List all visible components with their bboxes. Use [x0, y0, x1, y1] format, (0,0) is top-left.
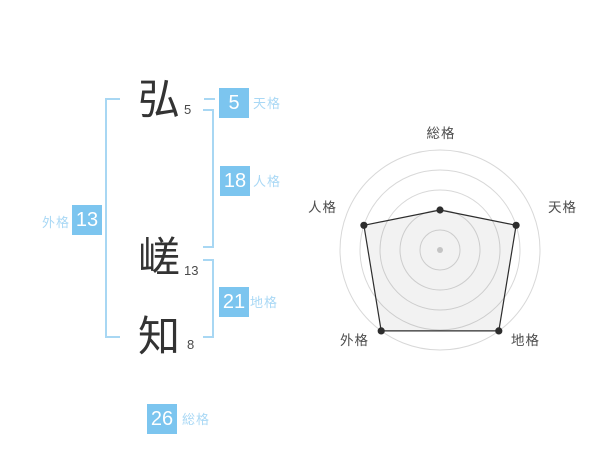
radar-axis-label: 地格 — [511, 333, 540, 348]
name-fortune-result-panel: 弘 嵯 知 5 13 8 5 天格 18 人格 外格 13 21 地格 26 総… — [0, 0, 600, 470]
soukaku-label: 総格 — [182, 413, 210, 426]
radar-data-polygon — [364, 210, 516, 331]
radar-axis-label: 総格 — [427, 126, 456, 141]
kanji-char-1: 弘 — [135, 78, 183, 122]
jinkaku-label: 人格 — [253, 175, 281, 188]
chikaku-badge: 21 — [219, 287, 249, 317]
chikaku-bracket-bottom-tick — [203, 336, 214, 338]
radar-center-dot — [437, 247, 443, 253]
radar-vertex-dot — [495, 327, 502, 334]
jinkaku-badge: 18 — [220, 166, 250, 196]
kanji-char-3: 知 — [135, 315, 183, 359]
stroke-count-3: 8 — [187, 338, 194, 351]
gaikaku-badge: 13 — [72, 205, 102, 235]
soukaku-badge: 26 — [147, 404, 177, 434]
radar-vertex-dot — [378, 327, 385, 334]
radar-axis-label: 外格 — [340, 333, 369, 348]
chikaku-bracket-vertical — [212, 259, 214, 338]
tenkaku-label: 天格 — [253, 97, 281, 110]
radar-vertex-dot — [513, 222, 520, 229]
jinkaku-bracket-top-tick — [203, 109, 214, 111]
radar-svg: 総格天格地格外格人格 — [300, 105, 600, 365]
gaikaku-label: 外格 — [42, 216, 70, 229]
stroke-count-1: 5 — [184, 103, 191, 116]
chikaku-bracket-top-tick — [203, 259, 214, 261]
gaikaku-bracket-vertical — [105, 98, 107, 338]
radar-vertex-dot — [360, 222, 367, 229]
chikaku-label: 地格 — [250, 296, 278, 309]
tenkaku-badge: 5 — [219, 88, 249, 118]
radar-vertex-dot — [436, 206, 443, 213]
radar-axis-label: 天格 — [548, 200, 577, 215]
jinkaku-bracket-bottom-tick — [203, 246, 214, 248]
stroke-count-2: 13 — [184, 264, 198, 277]
fortune-radar-chart: 総格天格地格外格人格 — [300, 105, 600, 365]
radar-axis-label: 人格 — [308, 200, 337, 215]
gaikaku-bracket-top-tick — [105, 98, 120, 100]
gaikaku-bracket-bottom-tick — [105, 336, 120, 338]
tenkaku-bracket-dash — [204, 98, 215, 100]
jinkaku-bracket-vertical — [212, 109, 214, 248]
kanji-char-2: 嵯 — [135, 236, 183, 280]
